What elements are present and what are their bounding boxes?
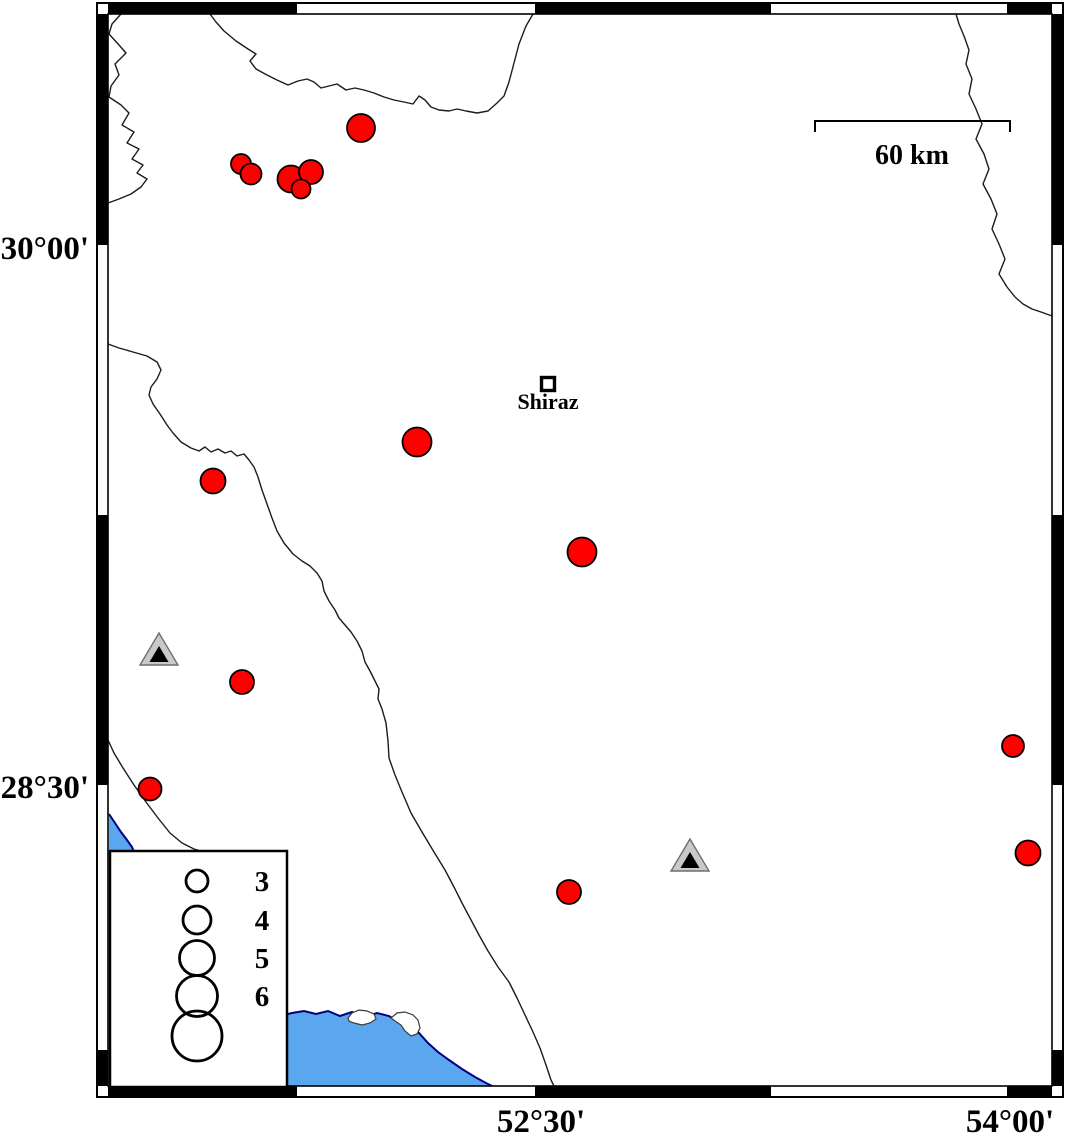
frame-right-black-1 <box>1052 515 1063 785</box>
lat-label-28-30: 28°30' <box>1 770 89 806</box>
earthquake-marker-6 <box>403 428 432 457</box>
frame-right-black-0 <box>1052 14 1063 245</box>
earthquake-marker-8 <box>568 538 597 567</box>
lon-label-54-00: 54°00' <box>966 1104 1054 1136</box>
frame-bottom-black-2 <box>1007 1086 1052 1097</box>
frame-left-black-0 <box>97 14 108 245</box>
northwest-border-line <box>108 14 147 203</box>
frame-left-black-1 <box>97 515 108 785</box>
earthquake-marker-7 <box>201 469 226 494</box>
lat-label-30-00: 30°00' <box>1 231 89 267</box>
earthquake-marker-9 <box>230 670 254 694</box>
frame-top-black-2 <box>1007 3 1052 14</box>
north-valley-border-line <box>210 14 533 113</box>
legend-magnitude-label-1: 4 <box>255 905 270 937</box>
scalebar-label: 60 km <box>875 140 949 171</box>
seismicity-map-figure: 60 km Shiraz 3456 30°00' 28°30' 52°30' 5… <box>0 0 1066 1136</box>
earthquake-marker-13 <box>1016 841 1041 866</box>
east-river-line <box>956 14 1052 316</box>
frame-right-black-2 <box>1052 1050 1063 1086</box>
earthquake-marker-0 <box>347 114 375 142</box>
frame-top-black-0 <box>108 3 297 14</box>
city-label: Shiraz <box>517 389 578 414</box>
earthquake-marker-11 <box>557 880 581 904</box>
legend-magnitude-label-3: 6 <box>255 981 270 1013</box>
earthquake-marker-5 <box>292 180 311 199</box>
earthquake-marker-10 <box>139 778 162 801</box>
gulf-water <box>280 1011 494 1087</box>
earthquake-marker-12 <box>1002 735 1024 757</box>
earthquakes-layer <box>139 114 1041 904</box>
frame-left-black-2 <box>97 1050 108 1086</box>
legend-magnitude-label-0: 3 <box>255 866 270 898</box>
city-layer: Shiraz <box>517 378 578 415</box>
frame-top-black-1 <box>535 3 771 14</box>
lon-label-52-30: 52°30' <box>497 1104 585 1136</box>
earthquake-marker-2 <box>241 164 262 185</box>
frame-bottom-black-1 <box>535 1086 771 1097</box>
legend-magnitude-label-2: 5 <box>255 943 270 975</box>
map-svg: 60 km Shiraz 3456 30°00' 28°30' 52°30' 5… <box>0 0 1066 1136</box>
legend-layer: 3456 <box>110 851 287 1087</box>
